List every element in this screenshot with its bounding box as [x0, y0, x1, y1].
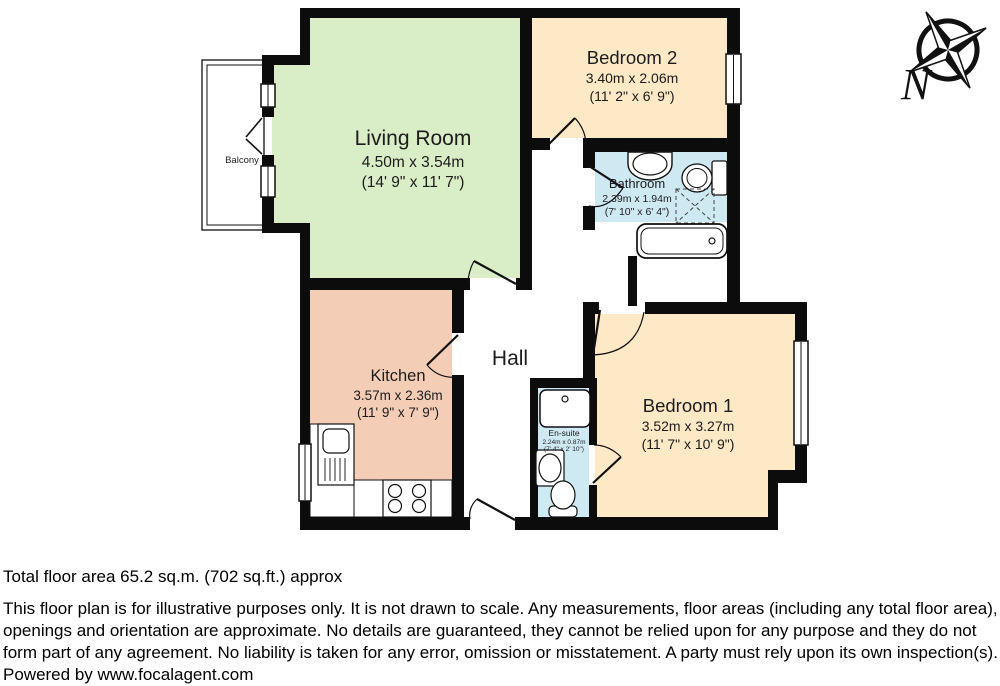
room-name: Bedroom 2 [552, 46, 712, 70]
room-metric-dimensions: 4.50m x 3.54m [333, 153, 493, 173]
french-door-icon [246, 118, 262, 154]
door-swing-icon [470, 499, 515, 520]
room-label-living-room: Living Room 4.50m x 3.54m (14' 9" x 11' … [333, 126, 493, 193]
room-name: Bedroom 1 [603, 394, 773, 418]
compass-north-label: N [900, 60, 933, 109]
room-name: Bathroom [577, 176, 697, 193]
room-label-en-suite: En-suite 2.24m x 0.87m (7' 4" x 2' 10") [528, 429, 600, 454]
kitchen-sink-icon [318, 424, 354, 485]
room-name: En-suite [528, 429, 600, 439]
room-label-bedroom-2: Bedroom 2 3.40m x 2.06m (11' 2" x 6' 9") [552, 46, 712, 105]
window-icon [299, 444, 311, 501]
disclaimer-text: This floor plan is for illustrative purp… [3, 598, 998, 664]
room-name: Balcony [210, 155, 274, 167]
window-icon [261, 84, 275, 107]
floor-plan-drawing: N [0, 0, 1000, 560]
room-metric-dimensions: 2.39m x 1.94m [577, 193, 697, 206]
total-floor-area-text: Total floor area 65.2 sq.m. (702 sq.ft.)… [3, 566, 998, 588]
toilet-icon [549, 481, 577, 517]
room-label-bedroom-1: Bedroom 1 3.52m x 3.27m (11' 7" x 10' 9"… [603, 394, 773, 453]
powered-by-text: Powered by www.focalagent.com [3, 664, 998, 686]
room-metric-dimensions: 2.24m x 0.87m [528, 439, 600, 446]
window-icon [261, 166, 275, 197]
bedroom1-floor [595, 470, 768, 517]
bathtub-icon [637, 224, 727, 258]
room-imperial-dimensions: (11' 7" x 10' 9") [603, 436, 773, 454]
room-metric-dimensions: 3.57m x 2.36m [318, 387, 478, 404]
wash-basin-icon [536, 450, 564, 486]
room-imperial-dimensions: (11' 9" x 7' 9") [318, 404, 478, 421]
shower-tray-icon [540, 390, 590, 427]
room-imperial-dimensions: (7' 4" x 2' 10") [528, 446, 600, 453]
window-icon [794, 341, 808, 445]
compass-rose-icon: N [900, 12, 986, 109]
room-name: Kitchen [318, 366, 478, 387]
balcony-outline [202, 60, 264, 230]
room-metric-dimensions: 3.40m x 2.06m [552, 70, 712, 88]
room-name: Living Room [333, 126, 493, 153]
living-room-floor [272, 65, 312, 223]
room-metric-dimensions: 3.52m x 3.27m [603, 418, 773, 436]
room-imperial-dimensions: (14' 9" x 11' 7") [333, 173, 493, 193]
room-label-kitchen: Kitchen 3.57m x 2.36m (11' 9" x 7' 9") [318, 366, 478, 422]
room-imperial-dimensions: (7' 10" x 6' 4") [577, 206, 697, 219]
room-label-balcony: Balcony [210, 155, 274, 167]
room-name: Hall [465, 346, 555, 373]
room-imperial-dimensions: (11' 2" x 6' 9") [552, 88, 712, 106]
room-label-bathroom: Bathroom 2.39m x 1.94m (7' 10" x 6' 4") [577, 176, 697, 220]
floor-plan-page: N Living Room 4.50m x 3.54m (14' 9" x 11… [0, 0, 1000, 686]
window-icon [726, 54, 741, 104]
hob-icon [383, 480, 431, 517]
room-label-hall: Hall [465, 346, 555, 373]
footer-notes: Total floor area 65.2 sq.m. (702 sq.ft.)… [3, 566, 998, 686]
